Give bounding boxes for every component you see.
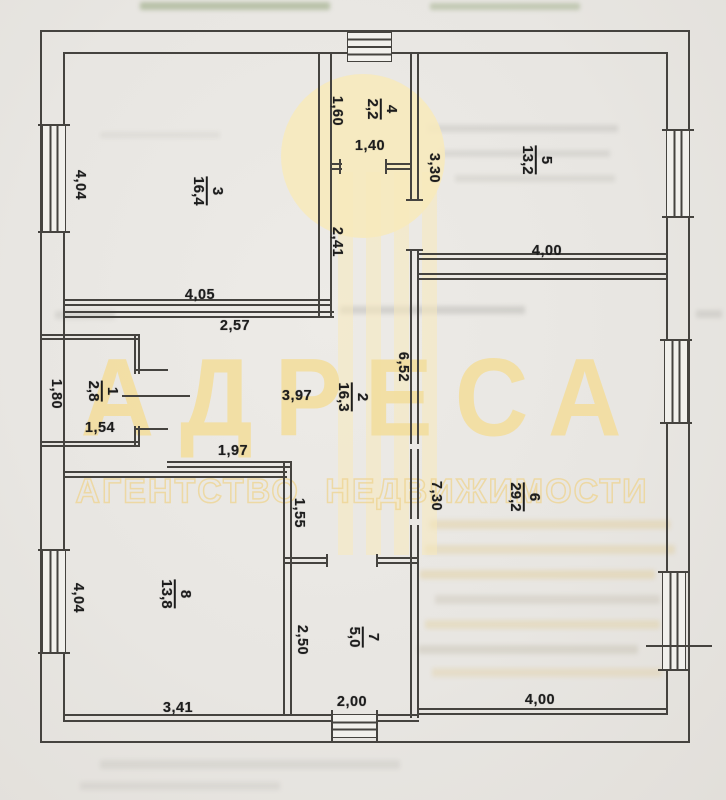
- dimension-label: 4,00: [525, 692, 555, 708]
- dimension-label: 3,41: [163, 700, 193, 716]
- dimension-label: 6,52: [395, 352, 411, 382]
- room-area: 29,2: [506, 482, 523, 511]
- scanned-floor-plan-page: АДРЕСА АГЕНТСТВО НЕДВИЖИМОСТИ: [0, 0, 726, 800]
- dimension-label: 1,97: [218, 443, 248, 459]
- room-label-8: 8 13,8: [157, 579, 193, 608]
- room-label-1: 1 2,8: [84, 381, 120, 402]
- dimension-label: 2,57: [220, 318, 250, 334]
- dimension-label: 1,80: [48, 379, 64, 409]
- room-area: 2,8: [84, 381, 101, 402]
- room-label-6: 6 29,2: [506, 482, 542, 511]
- room-label-3: 3 16,4: [189, 176, 225, 205]
- dimension-label: 1,60: [329, 96, 345, 126]
- plan-labels: 4,04 4,05 2,57 2,41 1,60 1,40 3,30 4,00 …: [0, 0, 726, 800]
- room-area: 13,8: [157, 579, 174, 608]
- dimension-label: 1,40: [355, 138, 385, 154]
- room-number: 5: [535, 145, 554, 174]
- room-label-2: 2 16,3: [334, 382, 370, 411]
- room-area: 2,2: [363, 99, 380, 120]
- room-area: 5,0: [345, 627, 362, 648]
- room-area: 16,3: [334, 382, 351, 411]
- room-number: 3: [206, 176, 225, 205]
- room-number: 1: [101, 381, 120, 402]
- room-label-4: 4 2,2: [363, 99, 399, 120]
- room-number: 6: [523, 482, 542, 511]
- room-label-7: 7 5,0: [345, 627, 381, 648]
- room-label-5: 5 13,2: [518, 145, 554, 174]
- room-area: 16,4: [189, 176, 206, 205]
- dimension-label: 2,00: [337, 694, 367, 710]
- room-number: 7: [362, 627, 381, 648]
- dimension-label: 7,30: [428, 481, 444, 511]
- room-area: 13,2: [518, 145, 535, 174]
- dimension-label: 2,41: [329, 227, 345, 257]
- dimension-label: 4,05: [185, 287, 215, 303]
- dimension-label: 1,55: [291, 498, 307, 528]
- dimension-label: 4,04: [70, 583, 86, 613]
- room-number: 8: [174, 579, 193, 608]
- dimension-label: 2,50: [294, 625, 310, 655]
- dimension-label: 3,97: [282, 388, 312, 404]
- dimension-label: 4,00: [532, 243, 562, 259]
- room-number: 4: [380, 99, 399, 120]
- room-number: 2: [351, 382, 370, 411]
- dimension-label: 1,54: [85, 420, 115, 436]
- dimension-label: 4,04: [72, 170, 88, 200]
- dimension-label: 3,30: [426, 153, 442, 183]
